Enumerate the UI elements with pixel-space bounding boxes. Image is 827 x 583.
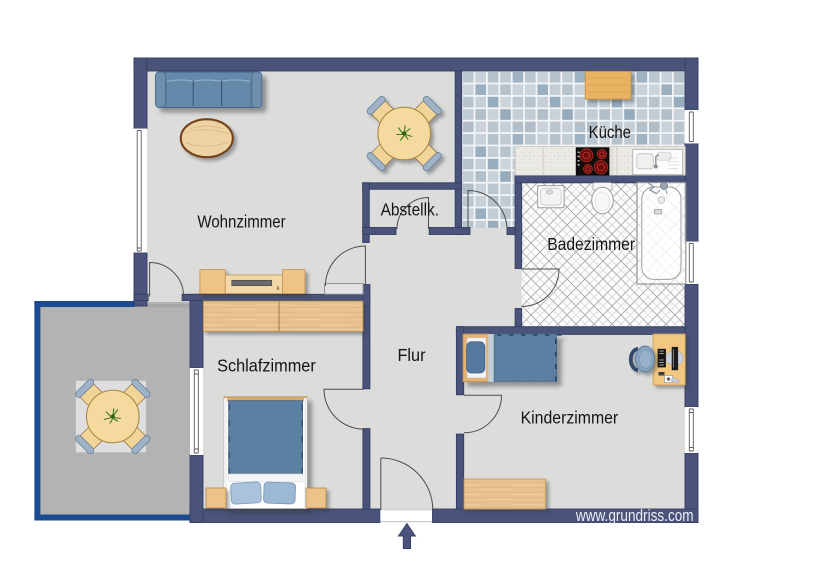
svg-text:Kinderzimmer: Kinderzimmer [521,408,619,428]
svg-text:Abstellk.: Abstellk. [381,199,440,219]
svg-text:Wohnzimmer: Wohnzimmer [197,211,285,231]
svg-text:Flur: Flur [398,345,426,365]
svg-text:Badezimmer: Badezimmer [547,234,635,254]
svg-text:Schlafzimmer: Schlafzimmer [217,355,316,375]
svg-text:www.grundriss.com: www.grundriss.com [575,507,694,525]
svg-text:Küche: Küche [589,122,631,142]
